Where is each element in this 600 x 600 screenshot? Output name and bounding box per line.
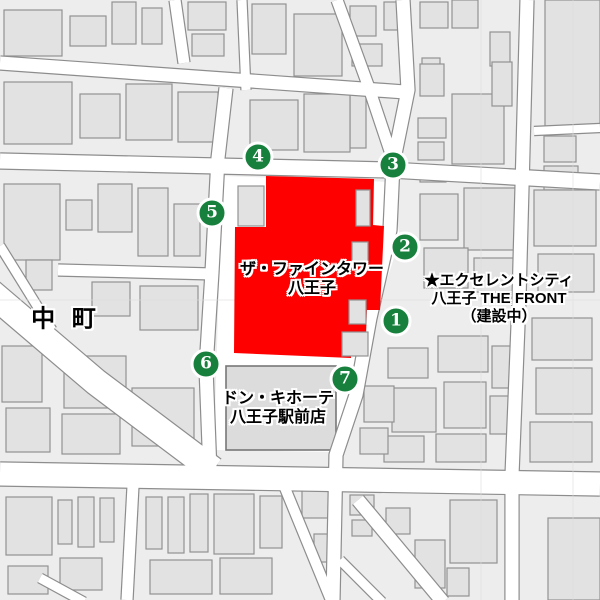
map-marker-4[interactable]: 4 <box>243 142 274 173</box>
don-quijote-label: ドン・キホーテ 八王子駅前店 <box>222 389 334 427</box>
highlight-building-label: ザ・ファインタワー 八王子 <box>240 260 384 298</box>
don-quijote-label-line1: ドン・キホーテ <box>222 389 334 408</box>
map[interactable]: ザ・ファインタワー 八王子 中 町 ★エクセレントシティ 八王子 THE FRO… <box>0 0 600 600</box>
map-marker-3[interactable]: 3 <box>378 150 409 181</box>
excellent-city-label-line2: 八王子 THE FRONT <box>424 290 573 308</box>
highlight-building-label-line2: 八王子 <box>240 279 384 298</box>
map-marker-7[interactable]: 7 <box>330 364 361 395</box>
excellent-city-label: ★エクセレントシティ 八王子 THE FRONT （建設中） <box>424 272 573 326</box>
excellent-city-label-line1: ★エクセレントシティ <box>424 272 573 290</box>
excellent-city-label-line3: （建設中） <box>424 308 573 326</box>
highlight-building-label-line1: ザ・ファインタワー <box>240 260 384 279</box>
don-quijote-label-line2: 八王子駅前店 <box>222 408 334 427</box>
map-marker-5[interactable]: 5 <box>197 198 228 229</box>
map-marker-1[interactable]: 1 <box>381 306 412 337</box>
map-marker-2[interactable]: 2 <box>390 232 421 263</box>
district-label-nakacho: 中 町 <box>31 299 101 334</box>
map-marker-6[interactable]: 6 <box>191 349 222 380</box>
